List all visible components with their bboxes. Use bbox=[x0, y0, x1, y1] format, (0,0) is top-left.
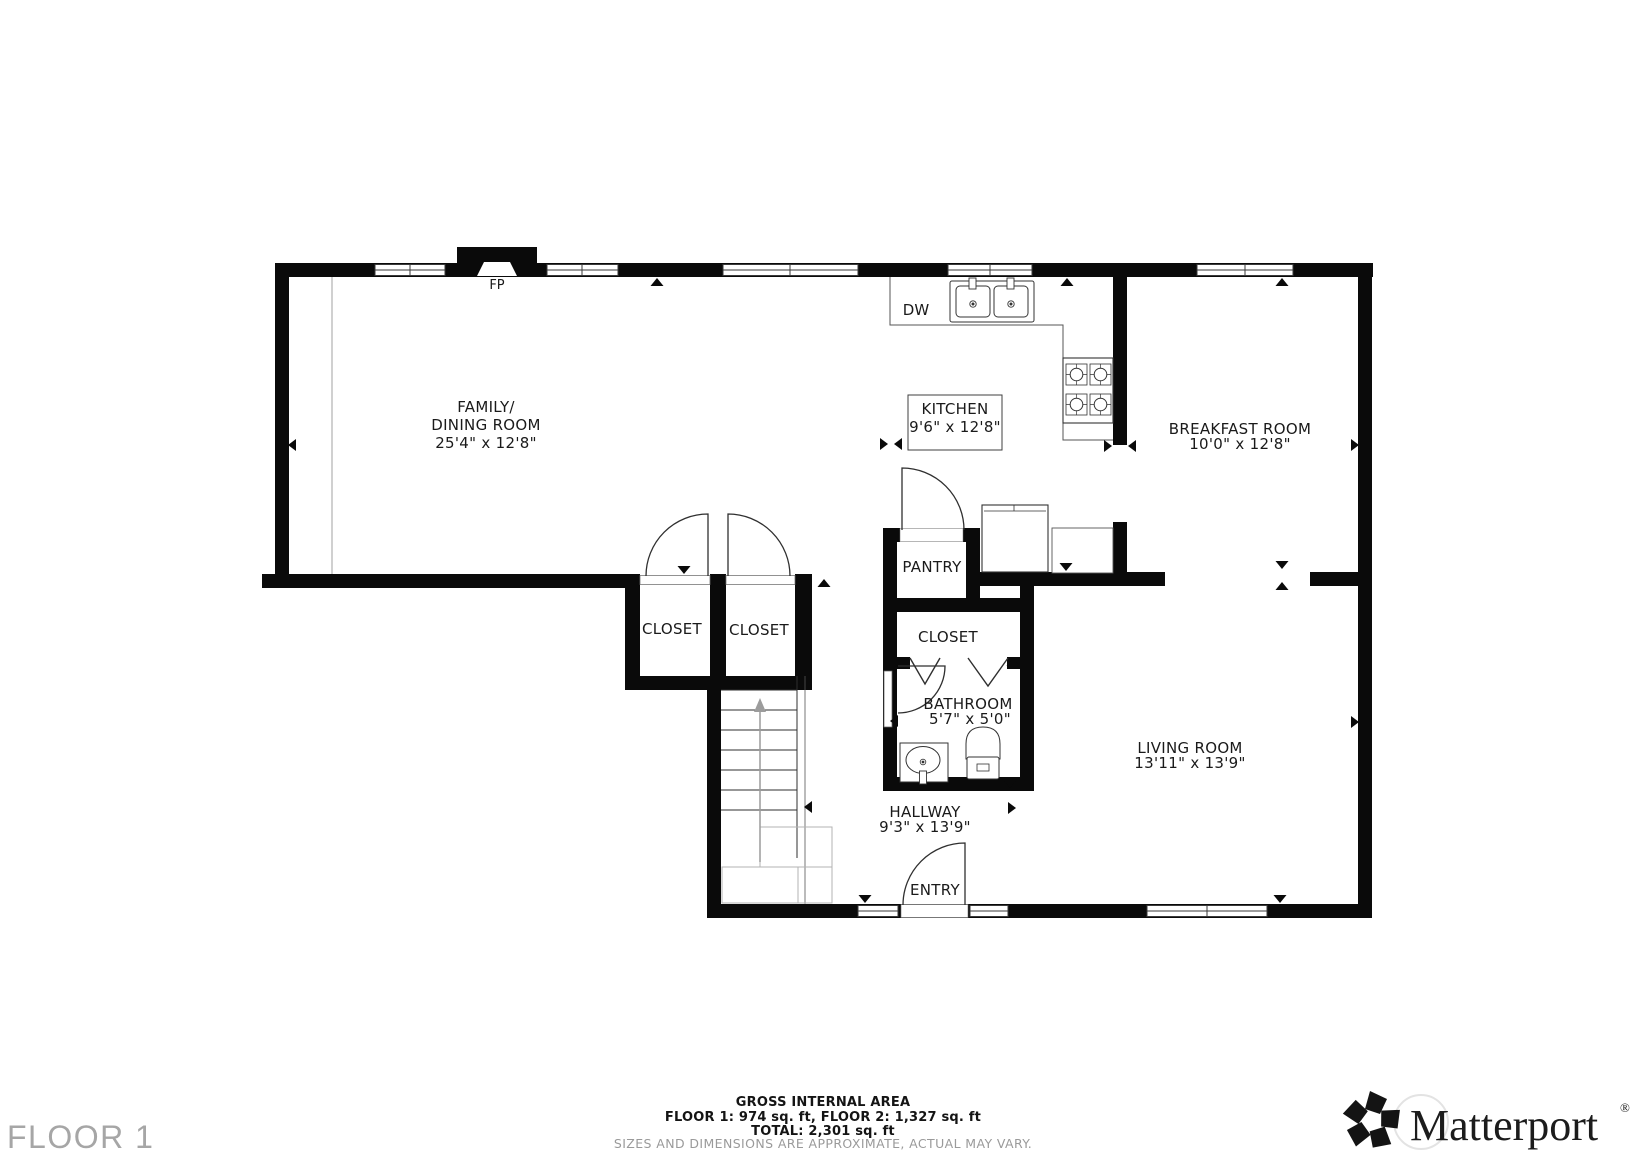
living-room-dims: 13'11" x 13'9" bbox=[1134, 754, 1245, 772]
matterport-wordmark: Matterport bbox=[1410, 1101, 1598, 1150]
fridge-icon bbox=[982, 505, 1048, 572]
window-bottom-2 bbox=[970, 906, 1008, 917]
footer: GROSS INTERNAL AREA FLOOR 1: 974 sq. ft,… bbox=[7, 1095, 1032, 1155]
closet-left-door-arc bbox=[646, 514, 708, 576]
matterport-logo: Matterport ® bbox=[1341, 1091, 1630, 1154]
windows bbox=[375, 265, 1293, 917]
closet-bath-label: CLOSET bbox=[918, 628, 979, 646]
closet-right-door-arc bbox=[728, 514, 790, 576]
pantry-door-arc bbox=[902, 468, 964, 530]
pantry-label: PANTRY bbox=[902, 558, 962, 576]
closet-right-label: CLOSET bbox=[729, 621, 790, 639]
family-room-label-1: FAMILY/ bbox=[457, 398, 515, 416]
walls bbox=[262, 263, 1373, 918]
kitchen-sink-icon bbox=[950, 278, 1034, 322]
fireplace-label: FP bbox=[489, 278, 504, 293]
registered-trademark-symbol: ® bbox=[1620, 1100, 1630, 1115]
family-room-label-2: DINING ROOM bbox=[431, 416, 541, 434]
bathroom-sink-icon bbox=[900, 743, 948, 784]
closet-bifold-chevron-1 bbox=[910, 658, 940, 684]
room-labels: FAMILY/ DINING ROOM 25'4" x 12'8" KITCHE… bbox=[431, 278, 1311, 899]
matterport-mark-icon bbox=[1341, 1091, 1405, 1154]
disclaimer-text: SIZES AND DIMENSIONS ARE APPROXIMATE, AC… bbox=[614, 1136, 1032, 1151]
window-top-1 bbox=[375, 265, 445, 276]
floor-number-label: FLOOR 1 bbox=[7, 1119, 154, 1155]
gross-area-title: GROSS INTERNAL AREA bbox=[736, 1095, 910, 1110]
floor-areas-line: FLOOR 1: 974 sq. ft, FLOOR 2: 1,327 sq. … bbox=[665, 1110, 981, 1125]
closet-left-label: CLOSET bbox=[642, 620, 703, 638]
bathroom-dims: 5'7" x 5'0" bbox=[929, 710, 1011, 728]
kitchen-label: KITCHEN bbox=[921, 400, 988, 418]
entry-label: ENTRY bbox=[910, 881, 961, 899]
window-top-4 bbox=[948, 265, 1032, 276]
window-bottom-3 bbox=[1147, 906, 1267, 917]
stairs-lower-flight bbox=[722, 827, 832, 903]
kitchen-dims: 9'6" x 12'8" bbox=[909, 418, 1001, 436]
hallway-dims: 9'3" x 13'9" bbox=[879, 818, 971, 836]
stove-icon bbox=[1063, 358, 1113, 423]
breakfast-room-dims: 10'0" x 12'8" bbox=[1189, 435, 1291, 453]
family-room-dims: 25'4" x 12'8" bbox=[435, 434, 537, 452]
toilet-icon bbox=[966, 727, 1000, 779]
floor-plan-canvas: FAMILY/ DINING ROOM 25'4" x 12'8" KITCHE… bbox=[0, 0, 1647, 1164]
bathroom-wall-window bbox=[884, 671, 892, 727]
window-top-2 bbox=[547, 265, 618, 276]
window-top-3 bbox=[723, 265, 858, 276]
window-bottom-1 bbox=[858, 906, 898, 917]
opening-markers bbox=[288, 278, 1359, 903]
dishwasher-label: DW bbox=[903, 301, 930, 319]
floor-plan-page: FAMILY/ DINING ROOM 25'4" x 12'8" KITCHE… bbox=[0, 0, 1647, 1164]
stairs-icon bbox=[721, 676, 832, 904]
fireplace-icon bbox=[457, 247, 537, 277]
kitchen-cabinet-icon bbox=[1052, 528, 1113, 573]
closet-bifold-chevron-2 bbox=[968, 658, 1008, 686]
window-top-5 bbox=[1197, 265, 1293, 276]
